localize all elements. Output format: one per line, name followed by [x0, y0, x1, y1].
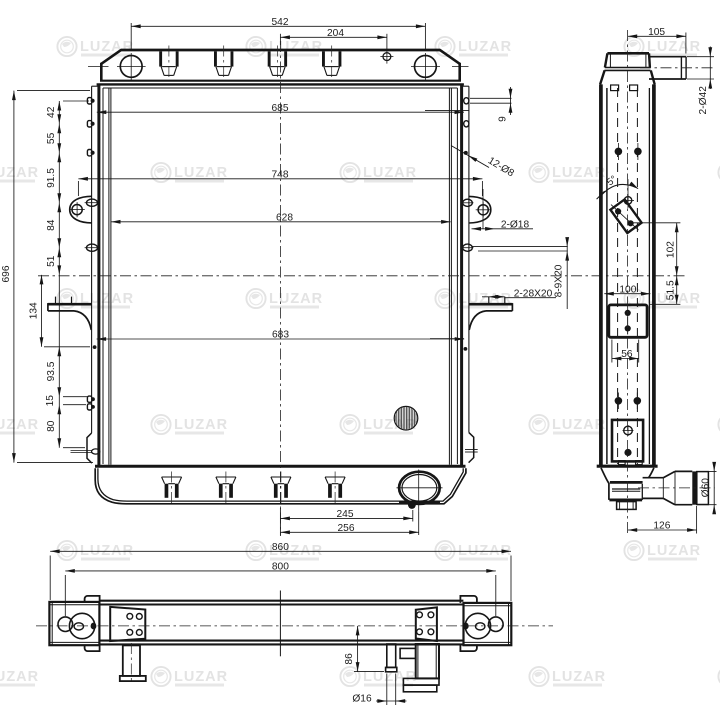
svg-text:LUZAR: LUZAR	[458, 39, 512, 55]
svg-text:LUZAR: LUZAR	[552, 669, 606, 685]
svg-text:LUZAR: LUZAR	[552, 417, 606, 433]
svg-text:LUZAR: LUZAR	[0, 165, 39, 181]
svg-text:245: 245	[337, 509, 354, 520]
svg-text:LUZAR: LUZAR	[174, 417, 228, 433]
svg-text:800: 800	[272, 562, 289, 573]
svg-text:LUZAR: LUZAR	[80, 39, 134, 55]
svg-text:91.5: 91.5	[46, 168, 57, 188]
svg-text:696: 696	[1, 265, 12, 282]
svg-text:8-9X20: 8-9X20	[554, 264, 565, 297]
svg-text:LUZAR: LUZAR	[552, 165, 606, 181]
svg-text:56: 56	[621, 349, 633, 360]
svg-text:685: 685	[272, 103, 289, 114]
svg-text:55: 55	[46, 132, 57, 144]
svg-text:LUZAR: LUZAR	[0, 417, 39, 433]
svg-text:86: 86	[344, 653, 355, 665]
svg-text:860: 860	[272, 542, 289, 553]
svg-text:Ø16: Ø16	[352, 693, 372, 704]
svg-text:105: 105	[648, 27, 665, 38]
svg-text:204: 204	[327, 28, 344, 39]
svg-text:LUZAR: LUZAR	[363, 417, 417, 433]
svg-text:256: 256	[338, 523, 355, 534]
svg-text:42: 42	[46, 106, 57, 118]
svg-text:LUZAR: LUZAR	[174, 669, 228, 685]
svg-text:2-28X20: 2-28X20	[514, 288, 553, 299]
svg-text:LUZAR: LUZAR	[647, 39, 701, 55]
svg-text:542: 542	[272, 17, 289, 28]
svg-text:628: 628	[276, 212, 293, 223]
svg-text:2-Ø18: 2-Ø18	[501, 219, 530, 230]
svg-text:LUZAR: LUZAR	[0, 669, 39, 685]
svg-text:51: 51	[46, 255, 57, 267]
svg-text:84: 84	[46, 219, 57, 231]
svg-text:126: 126	[653, 521, 670, 532]
svg-text:683: 683	[272, 330, 289, 341]
svg-text:15: 15	[45, 395, 56, 407]
svg-text:102: 102	[665, 241, 676, 258]
svg-text:134: 134	[29, 302, 40, 319]
svg-text:748: 748	[272, 169, 289, 180]
svg-text:2-Ø42: 2-Ø42	[698, 86, 709, 115]
svg-text:93.5: 93.5	[46, 361, 57, 381]
svg-text:LUZAR: LUZAR	[647, 543, 701, 559]
svg-text:Ø60: Ø60	[701, 478, 712, 498]
svg-text:80: 80	[46, 420, 57, 432]
svg-text:100: 100	[619, 284, 636, 295]
svg-text:9: 9	[498, 116, 509, 122]
svg-text:LUZAR: LUZAR	[269, 291, 323, 307]
svg-text:51.5: 51.5	[665, 280, 676, 300]
